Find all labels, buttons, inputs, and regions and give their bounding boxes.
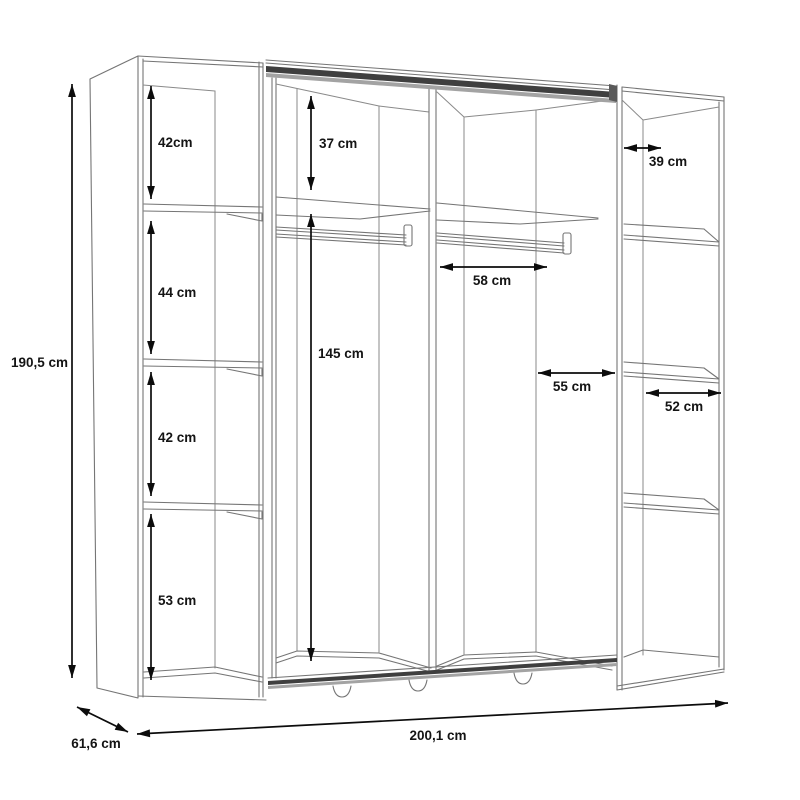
dimension-middle-top-gap: 37 cm [311, 96, 357, 190]
middle-right-span-label: 55 cm [553, 379, 591, 394]
middle-rail-span-label: 58 cm [473, 273, 511, 288]
overall-width-label: 200,1 cm [409, 728, 466, 743]
left-column-4-label: 53 cm [158, 593, 196, 608]
left-column-2-label: 44 cm [158, 285, 196, 300]
middle-right-shelf [437, 203, 598, 224]
dimension-middle-rail-span: 58 cm [440, 267, 547, 288]
left-column-shelf-2 [144, 359, 262, 376]
dimension-left-column-4: 53 cm [151, 514, 196, 680]
right-column-shelf-2 [624, 362, 719, 383]
foot [409, 680, 427, 691]
left-column-1-label: 42cm [158, 135, 193, 150]
divider-left [259, 62, 276, 697]
divider-middle [429, 88, 436, 670]
wardrobe-technical-drawing: 190,5 cm 42cm 44 cm 42 cm 53 cm 37 cm 14… [0, 0, 800, 800]
middle-hanging-height-label: 145 cm [318, 346, 364, 361]
dimension-overall-depth: 61,6 cm [71, 707, 128, 751]
dimension-left-column-2: 44 cm [151, 221, 196, 354]
right-column-bottom [617, 650, 724, 690]
foot [333, 686, 351, 697]
middle-left-shelf [276, 197, 430, 219]
middle-left-clothes-rail [276, 225, 412, 246]
left-column-3-label: 42 cm [158, 430, 196, 445]
dimension-right-column-depth: 39 cm [624, 148, 687, 169]
right-column [617, 85, 724, 690]
dimension-overall-height: 190,5 cm [11, 84, 72, 678]
dimension-right-column-shelf: 52 cm [646, 393, 721, 414]
dimension-left-column-1: 42cm [151, 86, 193, 199]
dimension-left-column-3: 42 cm [151, 372, 196, 496]
dimension-middle-hanging-height: 145 cm [311, 214, 364, 661]
left-column-shelf-3 [144, 502, 262, 519]
overall-height-label: 190,5 cm [11, 355, 68, 370]
dimension-overall-width: 200,1 cm [137, 703, 728, 743]
overall-depth-label: 61,6 cm [71, 736, 121, 751]
right-column-depth-label: 39 cm [649, 154, 687, 169]
dimension-middle-right-span: 55 cm [538, 373, 615, 394]
middle-top-gap-label: 37 cm [319, 136, 357, 151]
foot [514, 673, 532, 684]
right-column-shelf-label: 52 cm [665, 399, 703, 414]
left-column-shelf-1 [144, 204, 262, 221]
left-column-bottom [138, 667, 266, 700]
drawing-canvas: 190,5 cm 42cm 44 cm 42 cm 53 cm 37 cm 14… [0, 0, 800, 800]
right-column-shelf-3 [624, 493, 719, 514]
middle-left-section [276, 84, 431, 672]
middle-right-clothes-rail [437, 233, 571, 254]
right-column-shelf-1 [624, 224, 719, 246]
